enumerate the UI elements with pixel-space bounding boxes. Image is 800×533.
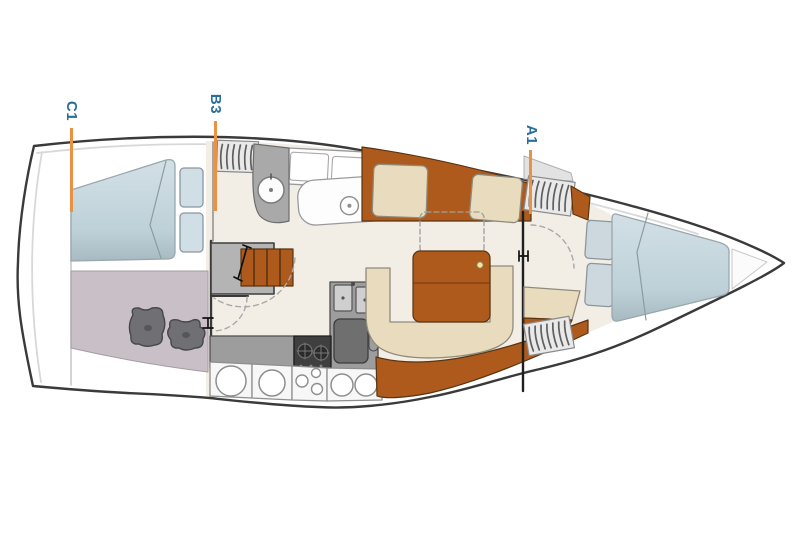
companionway-steps	[211, 243, 293, 294]
boat-floorplan-drawing	[0, 0, 800, 533]
section-marker-line-c1	[70, 128, 73, 212]
galley-stove	[294, 336, 331, 370]
head-vanity-sink	[253, 144, 289, 223]
section-label-c1: C1	[62, 96, 80, 126]
forward-wood-trim	[571, 186, 590, 220]
aft-locker-shelves	[216, 140, 258, 172]
section-marker-line-b3	[214, 121, 217, 211]
section-marker-line-a1	[529, 150, 532, 214]
floorplan-canvas: C1 B3 A1	[0, 0, 800, 533]
section-label-a1: A1	[522, 120, 540, 150]
section-label-b3: B3	[206, 89, 224, 119]
